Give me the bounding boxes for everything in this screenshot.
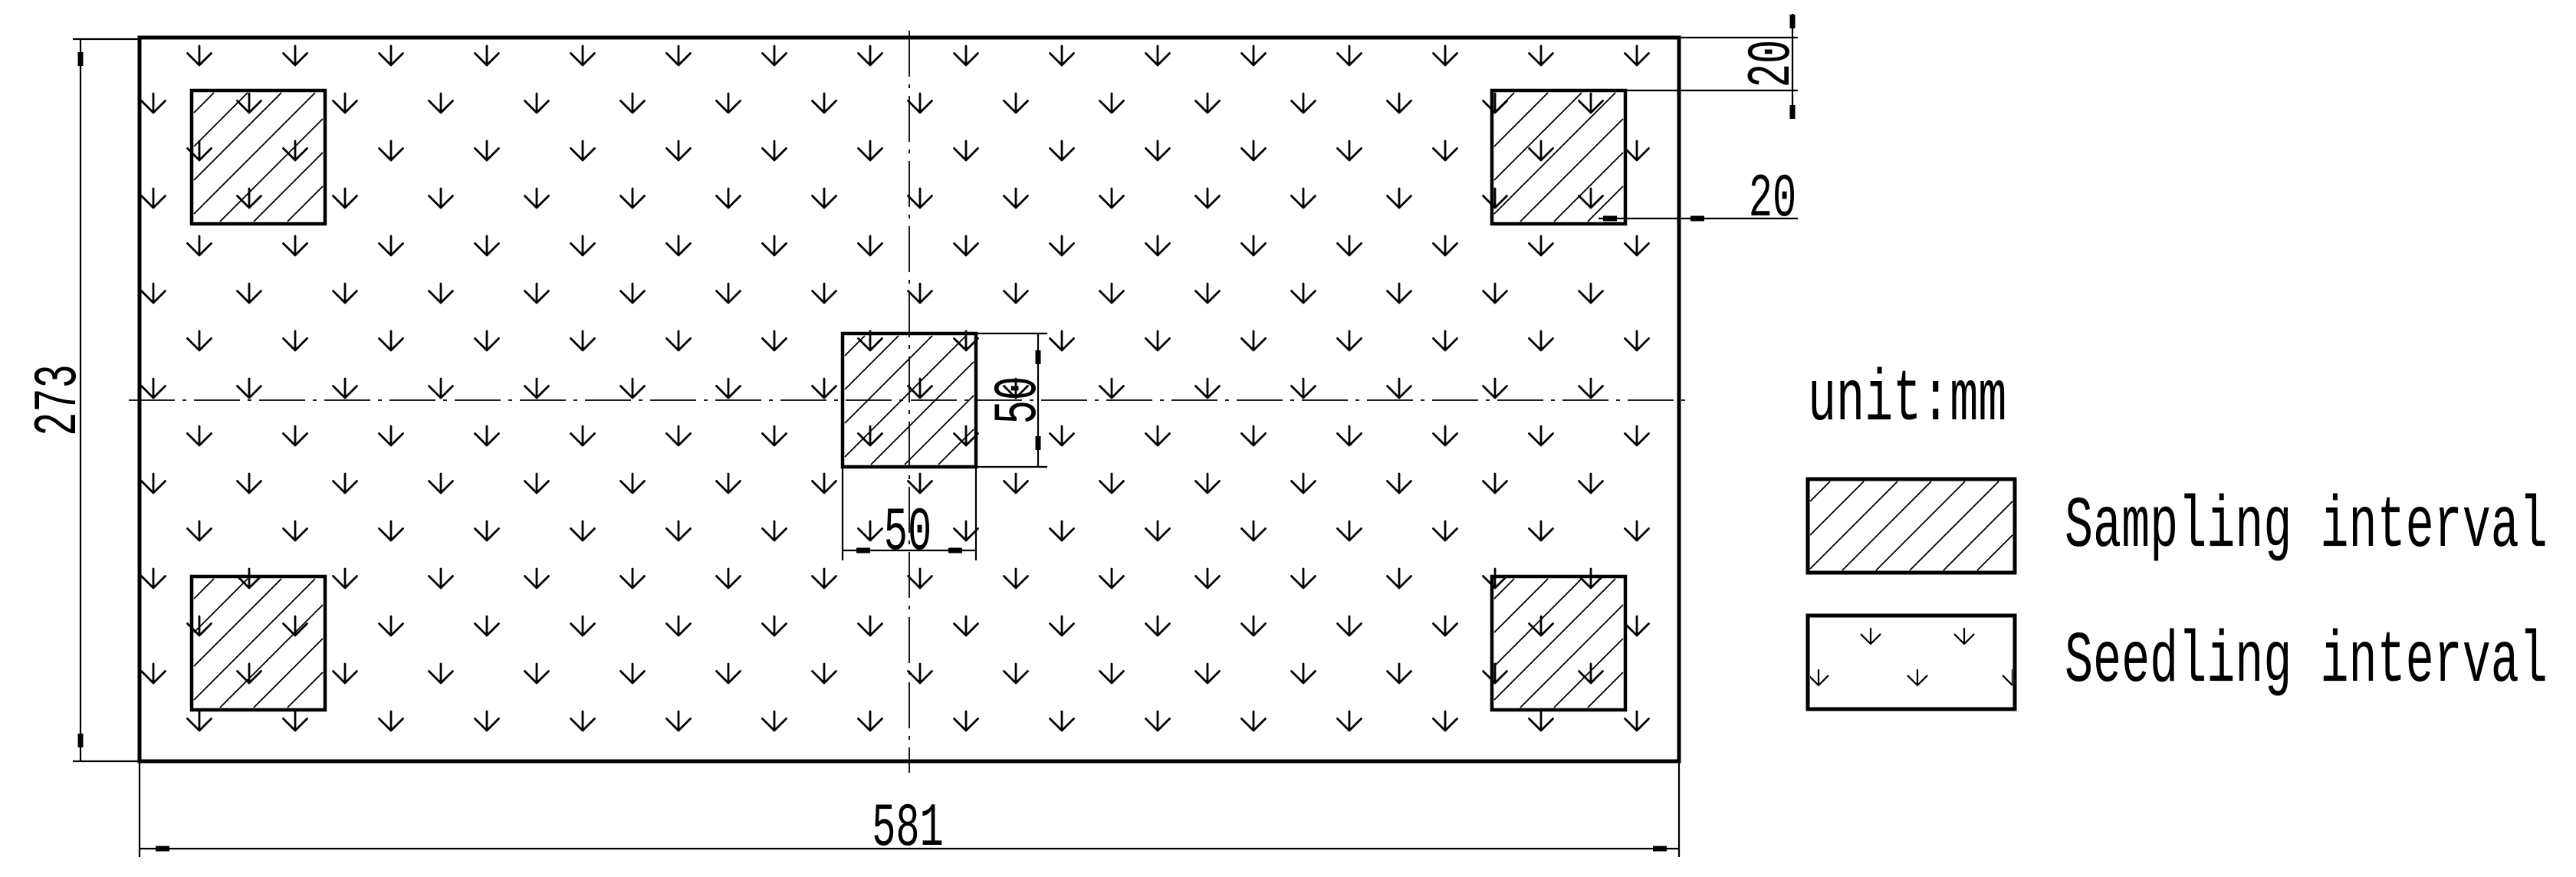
seedling-arrow <box>1242 141 1266 160</box>
seedling-arrow <box>1338 331 1362 350</box>
seedling-arrow <box>1434 141 1457 160</box>
hatch-line <box>1520 119 1623 222</box>
seedling-arrow <box>1338 616 1362 636</box>
seedling-arrow <box>1196 379 1220 398</box>
seedling-arrow <box>142 284 166 303</box>
sampling-square-bottom-left <box>192 576 325 710</box>
seedling-arrow <box>333 284 357 303</box>
seedling-arrow <box>763 616 787 636</box>
seedling-arrow <box>1529 141 1553 160</box>
hatch-line <box>845 336 899 389</box>
seedling-arrow <box>1242 46 1266 65</box>
seedling-arrow <box>1100 94 1124 113</box>
seedling-arrow <box>429 94 453 113</box>
seedling-arrow <box>475 46 499 65</box>
seedling-arrow <box>667 141 691 160</box>
seedling-arrow <box>238 94 261 113</box>
seedling-arrow <box>1338 521 1362 540</box>
seedling-arrow <box>763 426 787 445</box>
seedling-arrow <box>475 236 499 255</box>
seedling-arrow <box>1529 236 1553 255</box>
seedling-arrow <box>1146 426 1170 445</box>
seedling-arrow <box>1625 616 1649 636</box>
hatch-line <box>1494 93 1514 113</box>
seedling-arrow <box>1483 379 1507 398</box>
legend-seedling-arrow <box>1908 670 1927 685</box>
hatch-line <box>1494 93 1615 214</box>
seedling-arrow <box>1292 379 1316 398</box>
hatch-line <box>287 672 323 708</box>
seedling-arrow <box>379 521 403 540</box>
hatch-line <box>1810 481 1898 569</box>
seedling-arrow <box>1100 284 1124 303</box>
seedling-arrow <box>525 474 549 493</box>
seedling-arrow <box>621 474 645 493</box>
hatch-line <box>1494 579 1514 599</box>
seedling-arrow <box>1292 664 1316 683</box>
hatch-line <box>194 579 214 599</box>
seedling-arrow <box>1242 236 1266 255</box>
hatch-line <box>1520 605 1623 708</box>
seedling-arrow <box>1004 94 1028 113</box>
seedling-arrow <box>1146 616 1170 636</box>
legend-layer <box>1808 479 2022 709</box>
centerlines-layer <box>129 31 1690 773</box>
seedling-arrow <box>1483 569 1507 588</box>
hatch-line <box>220 119 323 222</box>
seedling-arrow <box>142 189 166 208</box>
seedling-arrow <box>1579 569 1603 588</box>
hatch-line <box>194 93 214 113</box>
hatch-line <box>1910 481 1999 570</box>
seedling-arrow <box>1625 331 1649 350</box>
dim-corner-offset-right-value: 20 <box>1749 166 1796 235</box>
seedling-arrow <box>859 521 882 540</box>
seedling-arrow <box>284 331 307 350</box>
seedling-arrow <box>1050 616 1074 636</box>
seedling-arrow <box>1625 141 1649 160</box>
hatch-line <box>1810 481 1864 535</box>
dim-tray-width-value: 581 <box>872 795 944 864</box>
seedling-arrow <box>859 426 882 445</box>
seedling-arrow <box>284 46 307 65</box>
seedling-arrow <box>379 141 403 160</box>
seedling-arrow <box>763 711 787 731</box>
seedling-arrow <box>429 189 453 208</box>
dim-tray-height-value: 273 <box>25 364 94 436</box>
seedling-arrow <box>667 711 691 731</box>
seedling-arrow <box>379 236 403 255</box>
seedling-arrow <box>1004 569 1028 588</box>
seedling-arrow <box>1529 426 1553 445</box>
seedling-arrow <box>1050 426 1074 445</box>
seedling-arrow <box>475 711 499 731</box>
seedling-arrow <box>429 664 453 683</box>
seedling-arrow <box>763 236 787 255</box>
hatch-line <box>1977 535 2013 570</box>
seedling-arrow <box>571 331 595 350</box>
seedling-arrow <box>1434 521 1457 540</box>
legend-seedling-arrow <box>1955 629 1974 644</box>
seedling-arrow <box>1196 94 1220 113</box>
seedling-arrow <box>621 189 645 208</box>
seedling-arrow <box>621 284 645 303</box>
seedling-arrow <box>717 189 741 208</box>
seedling-arrow <box>571 141 595 160</box>
seedling-arrow <box>1196 664 1220 683</box>
seedling-arrow <box>1242 331 1266 350</box>
seedling-arrow <box>955 46 978 65</box>
sampling-square-top-left <box>192 90 325 224</box>
seedling-arrow <box>475 521 499 540</box>
seedling-arrow <box>284 236 307 255</box>
hatch-line <box>220 605 323 708</box>
seedling-arrow <box>188 521 212 540</box>
seedling-arrow <box>813 474 836 493</box>
seedling-arrow <box>1483 664 1507 683</box>
unit-label: unit:mm <box>1808 360 2006 442</box>
seedling-arrow <box>1579 379 1603 398</box>
seedling-arrow <box>1625 46 1649 65</box>
seedling-arrow <box>955 141 978 160</box>
seedling-arrow <box>333 94 357 113</box>
seedling-arrow <box>142 94 166 113</box>
seedling-arrow <box>1338 236 1362 255</box>
hatch-line <box>871 362 974 465</box>
seedling-arrow <box>429 474 453 493</box>
seedling-arrow <box>1625 521 1649 540</box>
seedling-arrow <box>667 46 691 65</box>
seedling-arrow <box>859 616 882 636</box>
seedling-arrow <box>1146 521 1170 540</box>
seedling-arrow <box>284 141 307 160</box>
hatch-line <box>194 93 315 214</box>
seedling-arrow <box>1100 569 1124 588</box>
hatch-line <box>905 396 974 465</box>
seedling-arrow <box>667 236 691 255</box>
hatch-line <box>194 579 315 700</box>
seedling-arrow <box>1388 569 1411 588</box>
seedling-arrow <box>1050 141 1074 160</box>
seedling-arrow <box>667 521 691 540</box>
dim-sample-height-value: 50 <box>985 376 1054 424</box>
hatch-line <box>1944 501 2013 570</box>
seedling-arrow <box>571 616 595 636</box>
seedling-arrow <box>571 711 595 731</box>
seedling-arrow <box>955 711 978 731</box>
seedling-arrow <box>525 664 549 683</box>
hatch-line <box>1588 672 1623 708</box>
seedling-arrow <box>1242 616 1266 636</box>
seedling-arrow <box>379 331 403 350</box>
seedling-arrow <box>763 331 787 350</box>
hatch-line <box>1810 481 1830 501</box>
hatch-line <box>845 336 865 356</box>
seedling-arrow <box>1434 426 1457 445</box>
sampling-square-top-right <box>1492 90 1625 224</box>
legend-label-sampling: Sampling interval <box>2065 486 2548 569</box>
hatch-line <box>254 639 323 708</box>
seedling-arrow <box>667 426 691 445</box>
seedling-arrow <box>621 94 645 113</box>
seedling-arrow <box>763 141 787 160</box>
seedling-arrow <box>813 664 836 683</box>
seedling-arrow <box>1242 426 1266 445</box>
seedling-arrow <box>717 379 741 398</box>
seedling-arrow <box>1625 426 1649 445</box>
seedling-arrow <box>1242 521 1266 540</box>
seedling-arrow <box>188 46 212 65</box>
seedling-arrow <box>909 189 932 208</box>
seedling-arrow <box>859 236 882 255</box>
seedling-arrow <box>717 474 741 493</box>
seedling-arrow <box>475 616 499 636</box>
legend-box-sampling <box>1808 479 2015 573</box>
seedling-arrow <box>1050 46 1074 65</box>
seedling-arrow <box>1004 664 1028 683</box>
seedling-arrow <box>1625 711 1649 731</box>
legend-symbol-sampling <box>1808 479 2015 573</box>
seedling-arrow <box>763 46 787 65</box>
seedling-arrow <box>333 379 357 398</box>
seedling-arrow <box>1100 379 1124 398</box>
hatch-line <box>254 153 323 222</box>
seedling-arrow <box>1338 711 1362 731</box>
seedling-arrow <box>1004 474 1028 493</box>
seedling-arrow <box>1434 46 1457 65</box>
seedling-arrow <box>1146 711 1170 731</box>
seedling-arrow <box>1388 94 1411 113</box>
seedling-arrow <box>1292 284 1316 303</box>
seedling-arrow <box>813 379 836 398</box>
seedling-arrow <box>238 664 261 683</box>
seedling-arrow <box>955 616 978 636</box>
hatch-line <box>1554 153 1623 222</box>
hatch-line <box>1876 481 1965 570</box>
seedling-arrow <box>188 711 212 731</box>
seedling-arrow <box>1146 331 1170 350</box>
seedling-arrow <box>859 141 882 160</box>
hatch-line <box>845 336 966 457</box>
seedling-arrow <box>1100 664 1124 683</box>
hatch-line <box>194 93 281 180</box>
seedling-arrow <box>1196 189 1220 208</box>
seedling-arrow <box>188 426 212 445</box>
seedling-arrow <box>333 664 357 683</box>
seedling-arrow <box>429 284 453 303</box>
seedling-arrow <box>571 46 595 65</box>
seedling-arrow <box>1625 236 1649 255</box>
legend-arrows-group <box>1809 629 2022 685</box>
legend-symbol-seedling <box>1808 616 2022 709</box>
seedling-arrow <box>909 474 932 493</box>
legend-seedling-arrow <box>1809 670 1829 685</box>
seedling-arrow <box>621 569 645 588</box>
seedling-arrow <box>1050 236 1074 255</box>
seedling-arrow <box>429 379 453 398</box>
seedling-arrow <box>188 236 212 255</box>
seedling-arrow <box>1529 711 1553 731</box>
seedling-arrow <box>909 284 932 303</box>
seedling-arrow <box>142 474 166 493</box>
seedling-arrow <box>1050 711 1074 731</box>
seedling-arrow <box>1388 189 1411 208</box>
seedling-arrow <box>813 284 836 303</box>
legend-label-seedling: Seedling interval <box>2065 621 2548 704</box>
seedling-arrow <box>909 94 932 113</box>
seedling-arrow <box>1483 474 1507 493</box>
seedling-arrow <box>717 284 741 303</box>
dimension-layer <box>73 14 1798 857</box>
seedling-arrow <box>1196 284 1220 303</box>
seedling-arrow <box>571 521 595 540</box>
seedling-arrow <box>379 46 403 65</box>
seedling-arrow <box>1338 426 1362 445</box>
seedling-arrow <box>1100 189 1124 208</box>
seedling-arrow <box>1388 379 1411 398</box>
seedling-arrow <box>1050 521 1074 540</box>
seedling-arrow <box>333 474 357 493</box>
seedling-arrow <box>142 379 166 398</box>
seedling-arrow <box>333 569 357 588</box>
seedling-arrow <box>1434 616 1457 636</box>
seedling-arrow <box>1004 189 1028 208</box>
seedling-arrow <box>813 94 836 113</box>
hatch-line <box>287 186 323 222</box>
hatch-line <box>194 93 248 146</box>
seedling-arrow <box>717 569 741 588</box>
legend-seedling-arrow <box>2003 670 2022 685</box>
seedling-arrow <box>379 616 403 636</box>
seedling-arrow <box>1434 711 1457 731</box>
seedling-arrow <box>1579 189 1603 208</box>
hatch-line <box>1494 93 1548 146</box>
seedling-arrow <box>1388 284 1411 303</box>
seedling-arrow <box>717 664 741 683</box>
hatch-line <box>194 579 248 632</box>
legend-seedling-arrow <box>1861 629 1881 644</box>
dim-corner-offset-top-value: 20 <box>1739 40 1808 87</box>
seedling-arrow <box>955 236 978 255</box>
seedling-arrow <box>571 236 595 255</box>
seedling-arrow <box>1338 46 1362 65</box>
seedling-arrow <box>475 331 499 350</box>
seedling-arrow <box>813 189 836 208</box>
hatch-line <box>1494 579 1615 700</box>
seedling-arrow <box>717 94 741 113</box>
seedling-arrow <box>1292 189 1316 208</box>
seedling-arrow <box>955 521 978 540</box>
seedling-arrow <box>1196 474 1220 493</box>
seedling-arrow <box>1388 664 1411 683</box>
seedling-arrow <box>1338 141 1362 160</box>
seedling-arrow <box>1292 474 1316 493</box>
seedling-arrow <box>763 521 787 540</box>
seedling-arrow <box>238 379 261 398</box>
seedling-arrow <box>909 569 932 588</box>
seedling-arrow <box>1050 331 1074 350</box>
seedling-tray-diagram: 273 581 50 50 20 20 unit:mm Sampling int… <box>0 0 2576 877</box>
seedling-arrow <box>475 141 499 160</box>
seedling-arrow <box>1483 284 1507 303</box>
seedling-arrow <box>1004 284 1028 303</box>
seedling-arrow <box>621 664 645 683</box>
seedling-arrow <box>525 94 549 113</box>
seedling-arrow <box>909 664 932 683</box>
seedling-arrow <box>813 569 836 588</box>
seedling-arrow <box>667 616 691 636</box>
hatch-line <box>1554 639 1623 708</box>
seedling-arrow <box>379 711 403 731</box>
seedling-arrow <box>284 521 307 540</box>
seedling-arrow <box>142 664 166 683</box>
seedling-arrow <box>333 189 357 208</box>
seedling-arrow <box>621 379 645 398</box>
hatch-line <box>194 579 281 666</box>
seedling-arrow <box>475 426 499 445</box>
seedling-arrow <box>379 426 403 445</box>
seedling-arrow <box>1388 474 1411 493</box>
seedling-arrow <box>1529 521 1553 540</box>
seedling-arrow <box>525 379 549 398</box>
seedling-arrow <box>1146 236 1170 255</box>
seedling-arrow <box>1529 46 1553 65</box>
seedling-arrow <box>1242 711 1266 731</box>
seedling-arrow <box>1579 284 1603 303</box>
seedling-arrow <box>571 426 595 445</box>
seedling-arrow <box>284 711 307 731</box>
seedling-arrow <box>238 474 261 493</box>
seedling-arrow <box>1196 569 1220 588</box>
seedling-arrow <box>859 46 882 65</box>
seedling-arrow <box>1146 141 1170 160</box>
seedling-arrow <box>1529 331 1553 350</box>
seedling-arrow <box>142 569 166 588</box>
seedling-arrow <box>188 331 212 350</box>
seedling-arrow <box>1292 569 1316 588</box>
seedling-arrow <box>525 189 549 208</box>
legend-box-seedling <box>1808 616 2015 709</box>
seedling-arrow <box>859 711 882 731</box>
seedling-arrow <box>1434 236 1457 255</box>
hatch-line <box>1842 481 1931 570</box>
seedling-arrow <box>1579 664 1603 683</box>
seedling-arrow <box>525 284 549 303</box>
sampling-square-bottom-right <box>1492 576 1625 710</box>
seedling-arrow <box>1579 474 1603 493</box>
seedling-arrow <box>1292 94 1316 113</box>
seedling-arrow <box>284 426 307 445</box>
seedling-arrow <box>1434 331 1457 350</box>
seedling-arrow <box>429 569 453 588</box>
seedling-arrow-grid <box>142 46 1649 731</box>
seedling-arrow <box>238 284 261 303</box>
seedling-arrow <box>1100 474 1124 493</box>
hatch-line <box>1494 93 1582 180</box>
hatch-line <box>1494 579 1548 632</box>
seedling-arrow <box>1146 46 1170 65</box>
dim-sample-width-value: 50 <box>884 499 932 568</box>
page: 273 581 50 50 20 20 unit:mm Sampling int… <box>0 0 2576 877</box>
hatch-line <box>1494 579 1582 666</box>
seedling-arrow <box>667 331 691 350</box>
seedling-arrow <box>525 569 549 588</box>
